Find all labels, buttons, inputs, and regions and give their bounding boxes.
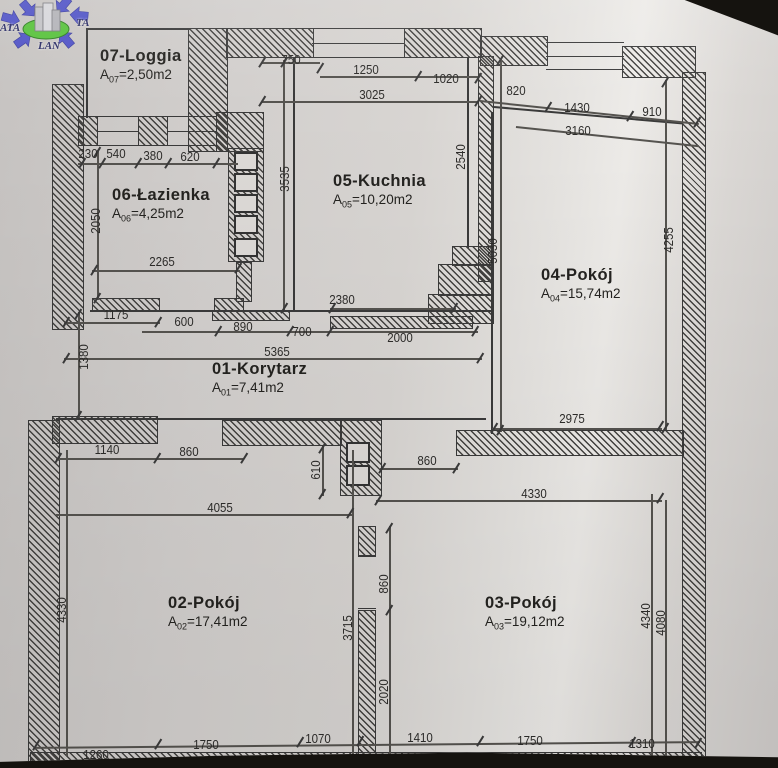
dim-380: 380: [143, 150, 162, 163]
room04-left-line: [491, 112, 493, 434]
room-label-kitchen: 05-Kuchnia A05=10,20m2: [333, 172, 426, 210]
dim-910: 910: [642, 106, 661, 119]
dim-3025: 3025: [359, 89, 385, 102]
dim-600: 600: [174, 316, 193, 329]
dimension-tick: [154, 739, 162, 750]
wall-top-left: [226, 28, 314, 58]
room-name: 04-Pokój: [541, 266, 620, 285]
dimension-line: [330, 308, 456, 310]
room-name: 05-Kuchnia: [333, 172, 426, 191]
window-bath-a: [98, 116, 138, 146]
shaft-box: [346, 442, 370, 463]
dimension-line: [92, 270, 240, 272]
room-name: 06-Łazienka: [112, 186, 210, 205]
dim-2540: 2540: [455, 144, 468, 170]
window-room04-top: [546, 42, 624, 70]
dim-5030: 5030: [487, 238, 500, 264]
dim-700: 700: [292, 326, 311, 339]
room-name: 02-Pokój: [168, 594, 247, 613]
dim-540: 540: [106, 148, 125, 161]
shaft-box: [346, 465, 370, 486]
dim-890: 890: [233, 321, 252, 334]
dim-860-left: 860: [179, 446, 198, 459]
dim-230: 230: [78, 148, 97, 161]
dimension-tick: [318, 489, 326, 500]
room-area: A02=17,41m2: [168, 614, 247, 632]
logo-text-ata: ATA: [0, 22, 20, 34]
dimension-line: [389, 526, 391, 766]
paper-sheet: 750 1250 1020 3025 820 1430 910 3160 230…: [0, 0, 778, 768]
room-label-bathroom: 06-Łazienka A06=4,25m2: [112, 186, 210, 224]
shaft-box: [234, 173, 258, 192]
room-name: 07-Loggia: [100, 47, 182, 66]
logo-buildings-icon: [35, 3, 60, 31]
dim-1020: 1020: [433, 73, 459, 86]
dim-610: 610: [310, 460, 323, 479]
dim-4330-room03: 4330: [521, 488, 547, 501]
room-area: A05=10,20m2: [333, 192, 426, 210]
wall-corridor-left-stub: [52, 416, 158, 444]
corridor-bottom-line: [56, 418, 486, 420]
room-area: A07=2,50m2: [100, 67, 182, 85]
dim-860-door: 860: [378, 574, 391, 593]
wall-bath-window-pier-b: [138, 116, 168, 146]
dimension-line: [376, 500, 662, 502]
dim-5365: 5365: [264, 346, 290, 359]
dim-620: 620: [180, 151, 199, 164]
door-jamb-line: [358, 556, 376, 557]
dim-4330-left: 4330: [56, 597, 69, 623]
dim-4255: 4255: [663, 227, 676, 253]
wall-outer-left-lower: [28, 420, 60, 762]
wall-top-mid: [404, 28, 482, 58]
corridor-top-line: [90, 310, 492, 312]
logo-text-ta: TA: [76, 17, 89, 29]
door-jamb-line: [358, 608, 376, 609]
window-kitchen-top: [312, 28, 404, 58]
room-label-room04: 04-Pokój A04=15,74m2: [541, 266, 620, 304]
dim-2265: 2265: [149, 256, 175, 269]
room-label-corridor: 01-Korytarz A01=7,41m2: [212, 360, 307, 398]
dim-1140: 1140: [95, 444, 120, 457]
wall-bath-kitchen-corner: [216, 112, 264, 152]
room-name: 01-Korytarz: [212, 360, 307, 379]
logo-text-lan: LAN: [38, 40, 60, 52]
dim-4340: 4340: [640, 603, 653, 629]
dim-860-mid: 860: [417, 455, 436, 468]
shaft-box: [234, 238, 258, 257]
loggia-top-line: [86, 28, 190, 30]
dim-2380: 2380: [329, 294, 355, 307]
shaft-box: [234, 194, 258, 213]
dimension-line: [56, 458, 244, 460]
wall-outer-right: [682, 72, 706, 762]
dim-1410: 1410: [407, 732, 433, 745]
wall-kitchen-step-b: [438, 264, 494, 296]
window-bath-b: [168, 116, 216, 146]
room-area: A04=15,74m2: [541, 286, 620, 304]
dimension-tick: [316, 63, 324, 74]
room-label-room02: 02-Pokój A02=17,41m2: [168, 594, 247, 632]
dimension-line: [352, 450, 354, 760]
room-area: A06=4,25m2: [112, 206, 210, 224]
dim-1175: 1175: [104, 309, 129, 322]
kitchen-left-line: [293, 58, 295, 310]
dim-2050: 2050: [90, 208, 103, 234]
dim-4080: 4080: [655, 610, 668, 636]
room-area: A03=19,12m2: [485, 614, 564, 632]
wall-outer-bottom: [30, 752, 702, 766]
room-area: A01=7,41m2: [212, 380, 307, 398]
dim-1430: 1430: [564, 102, 590, 115]
dim-2975: 2975: [559, 413, 585, 426]
dimension-line: [492, 428, 662, 430]
dim-3715: 3715: [342, 615, 355, 641]
dim-1250: 1250: [353, 64, 379, 77]
dim-1750-b: 1750: [517, 735, 543, 748]
sill-kitchen-2000: [330, 316, 473, 329]
room-name: 03-Pokój: [485, 594, 564, 613]
watermark-logo: ATA TA LAN: [0, 0, 96, 60]
dimension-line: [380, 468, 458, 470]
dim-750: 750: [281, 54, 300, 67]
dim-3160: 3160: [565, 125, 591, 138]
dimension-line: [500, 58, 502, 432]
dim-2000: 2000: [387, 332, 413, 345]
room-label-room03: 03-Pokój A03=19,12m2: [485, 594, 564, 632]
wall-divider-stub: [358, 526, 376, 556]
dim-1260: 1260: [83, 749, 109, 762]
dim-2020: 2020: [378, 679, 391, 705]
dim-1750-a: 1750: [193, 739, 219, 752]
room-label-loggia: 07-Loggia A07=2,50m2: [100, 47, 182, 85]
dim-4055: 4055: [207, 502, 233, 515]
dimension-tick: [476, 736, 484, 747]
shaft-box: [234, 215, 258, 234]
dim-1310: 1310: [629, 738, 655, 751]
dimension-line: [56, 514, 352, 516]
shaft-box: [234, 152, 258, 171]
dimension-line: [516, 126, 699, 147]
dim-1380: 1380: [78, 344, 91, 370]
dimension-line: [665, 80, 667, 430]
dim-3535: 3535: [279, 166, 292, 192]
dim-1070: 1070: [305, 733, 331, 746]
dimension-tick: [656, 493, 664, 504]
dim-820: 820: [506, 85, 525, 98]
wall-bath-window-pier-a: [78, 116, 98, 146]
